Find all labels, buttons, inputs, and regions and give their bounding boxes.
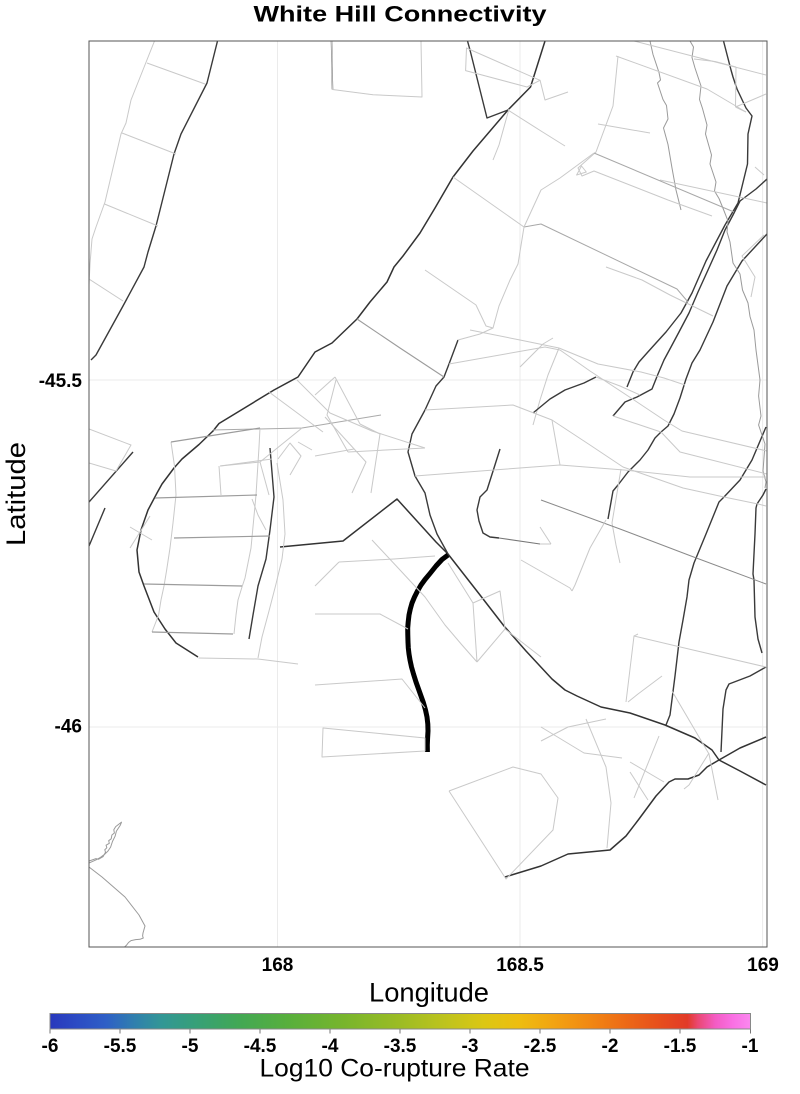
svg-text:Log10 Co-rupture Rate: Log10 Co-rupture Rate: [260, 1055, 530, 1083]
svg-text:168: 168: [262, 955, 294, 976]
svg-text:Longitude: Longitude: [369, 978, 489, 1008]
svg-text:-5.5: -5.5: [104, 1036, 137, 1057]
svg-text:-2: -2: [602, 1036, 619, 1057]
svg-text:-5: -5: [182, 1036, 199, 1057]
svg-text:-1.5: -1.5: [664, 1036, 697, 1057]
svg-text:169: 169: [747, 955, 779, 976]
svg-text:-1: -1: [742, 1036, 759, 1057]
svg-text:White Hill Connectivity: White Hill Connectivity: [254, 1, 548, 26]
svg-text:-46: -46: [55, 717, 82, 738]
svg-text:-6: -6: [42, 1036, 59, 1057]
svg-text:-45.5: -45.5: [39, 371, 83, 392]
svg-text:168.5: 168.5: [496, 955, 544, 976]
svg-text:Latitude: Latitude: [1, 442, 31, 546]
